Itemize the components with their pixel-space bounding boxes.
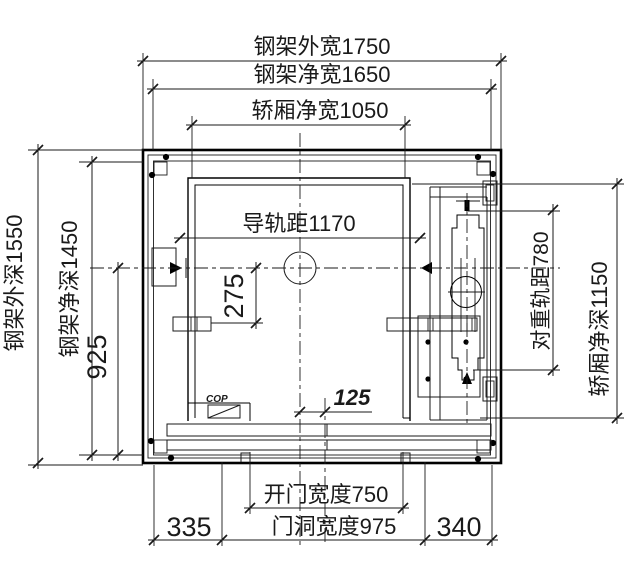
frame-brackets-right (483, 181, 497, 401)
drawing-canvas: 钢架外宽1750 钢架净宽1650 轿厢净宽1050 导轨距1170 开门宽度7… (0, 0, 640, 576)
cop-box (208, 405, 240, 418)
elevator-shaft-plan: 钢架外宽1750 钢架净宽1650 轿厢净宽1050 导轨距1170 开门宽度7… (0, 0, 640, 576)
dim-door-open-width: 开门宽度750 (264, 482, 389, 507)
guide-rail-right (387, 262, 477, 331)
dim-frame-net-depth: 钢架净深1450 (57, 221, 82, 358)
dim-guide-rail-span: 导轨距1170 (242, 211, 355, 236)
guide-rail-left (152, 248, 211, 331)
door-sill (167, 424, 491, 462)
dim-left-margin: 335 (166, 512, 211, 542)
dim-door-hole-width: 门洞宽度975 (272, 514, 397, 539)
cop-label: COP (206, 394, 228, 405)
dim-center-offset: 275 (219, 273, 249, 318)
counterweight-assembly (418, 187, 487, 420)
dim-frame-outer-width: 钢架外宽1750 (254, 34, 391, 59)
dim-frame-outer-depth: 钢架外深1550 (2, 215, 27, 352)
dim-door-center-offset: 125 (334, 385, 371, 410)
dim-cw-rail-span: 对重轨距780 (530, 231, 553, 350)
dim-frame-net-width: 钢架净宽1650 (254, 62, 391, 87)
dim-center-to-bracket: 925 (82, 334, 112, 379)
dimension-labels: 钢架外宽1750 钢架净宽1650 轿厢净宽1050 导轨距1170 开门宽度7… (2, 34, 612, 542)
dim-car-net-depth: 轿厢净深1150 (587, 261, 612, 396)
dim-right-margin: 340 (436, 512, 481, 542)
dim-car-net-width: 轿厢净宽1050 (252, 98, 389, 123)
